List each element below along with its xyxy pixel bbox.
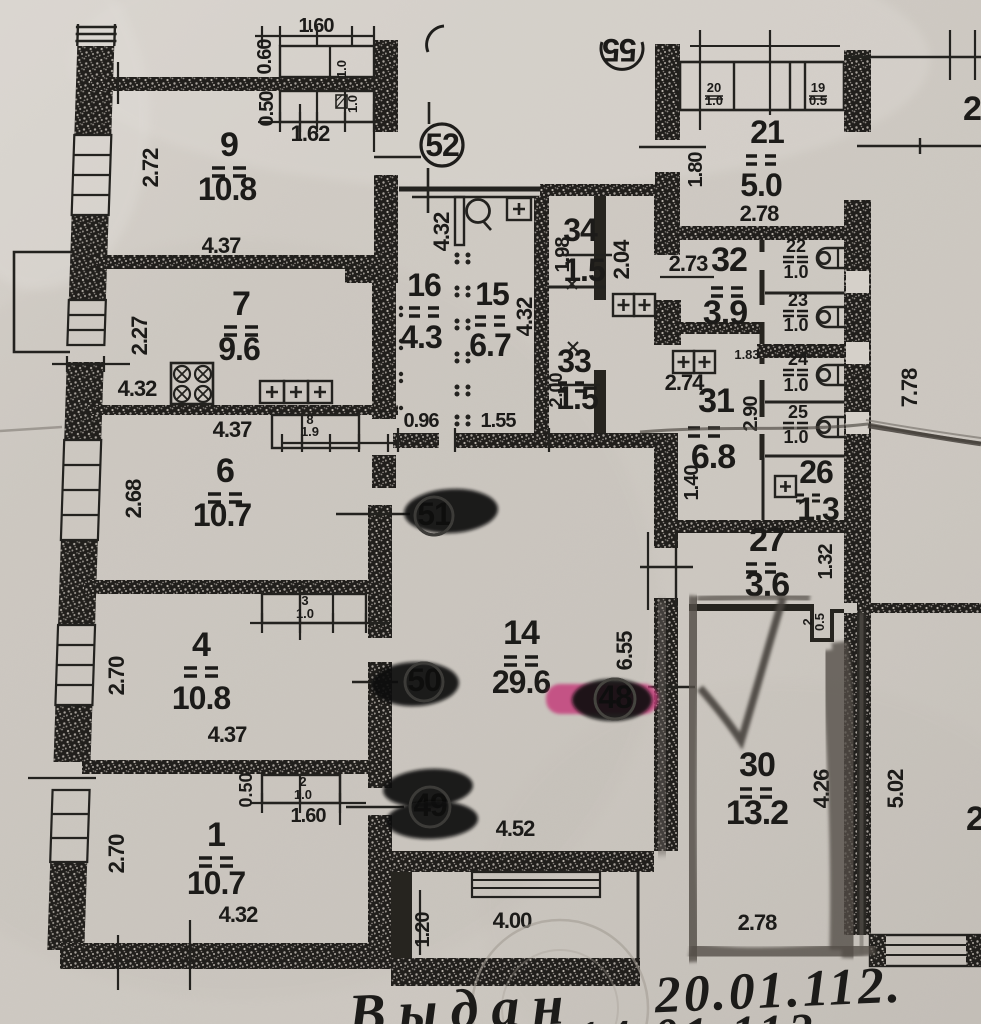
svg-text:2.73: 2.73 — [669, 251, 709, 276]
svg-text:4.32: 4.32 — [219, 902, 259, 927]
svg-text:13.2: 13.2 — [726, 794, 788, 832]
svg-text:4.37: 4.37 — [202, 233, 242, 258]
svg-text:1.0: 1.0 — [783, 375, 808, 395]
svg-text:10.7: 10.7 — [193, 497, 251, 533]
svg-text:1.32: 1.32 — [815, 544, 837, 580]
svg-text:0.96: 0.96 — [404, 410, 440, 432]
svg-text:31: 31 — [698, 382, 734, 420]
svg-text:4.32: 4.32 — [429, 212, 454, 252]
svg-text:30: 30 — [739, 746, 775, 784]
svg-text:6: 6 — [216, 452, 234, 490]
svg-text:1.62: 1.62 — [291, 121, 331, 146]
svg-text:1.60: 1.60 — [291, 805, 327, 827]
svg-text:1.0: 1.0 — [334, 60, 349, 78]
svg-text:23: 23 — [788, 290, 808, 310]
svg-text:1.83: 1.83 — [734, 347, 759, 362]
svg-text:4.00: 4.00 — [493, 908, 533, 933]
svg-text:9.6: 9.6 — [218, 331, 260, 367]
svg-text:2.00: 2.00 — [546, 372, 566, 407]
svg-text:6.7: 6.7 — [469, 327, 511, 363]
svg-text:6.55: 6.55 — [612, 631, 637, 671]
svg-text:10.7: 10.7 — [187, 865, 245, 901]
svg-text:2.68: 2.68 — [121, 479, 146, 519]
svg-text:1.0: 1.0 — [783, 262, 808, 282]
svg-text:2.04: 2.04 — [609, 239, 634, 280]
svg-text:4.37: 4.37 — [208, 722, 248, 747]
svg-text:1.0: 1.0 — [294, 787, 312, 802]
svg-text:0.60: 0.60 — [254, 39, 276, 75]
svg-text:7: 7 — [232, 285, 250, 323]
svg-text:52: 52 — [425, 127, 459, 163]
svg-text:5.0: 5.0 — [740, 167, 782, 203]
svg-text:4.32: 4.32 — [118, 376, 158, 401]
svg-text:10.8: 10.8 — [198, 171, 256, 207]
svg-text:2.70: 2.70 — [104, 656, 129, 696]
svg-text:2.27: 2.27 — [127, 316, 152, 356]
svg-text:1.80: 1.80 — [685, 152, 707, 188]
svg-text:2.90: 2.90 — [740, 396, 762, 432]
svg-text:2: 2 — [966, 800, 981, 838]
svg-text:27: 27 — [749, 521, 785, 559]
svg-text:21: 21 — [750, 114, 784, 150]
svg-text:16: 16 — [407, 267, 441, 303]
svg-text:2.72: 2.72 — [138, 148, 163, 188]
svg-text:1.3: 1.3 — [797, 491, 839, 527]
svg-text:26: 26 — [799, 454, 833, 490]
svg-text:1.5: 1.5 — [563, 252, 605, 288]
svg-text:4.32: 4.32 — [512, 297, 537, 337]
svg-text:4: 4 — [192, 626, 211, 664]
svg-text:1.40: 1.40 — [681, 465, 703, 501]
svg-text:1.20: 1.20 — [412, 912, 434, 948]
svg-text:2: 2 — [963, 90, 981, 128]
svg-text:1.0: 1.0 — [783, 427, 808, 447]
svg-text:0.50: 0.50 — [256, 91, 278, 127]
svg-text:2.78: 2.78 — [740, 201, 780, 226]
svg-text:3.9: 3.9 — [703, 294, 747, 332]
svg-text:24: 24 — [788, 349, 808, 369]
svg-text:14: 14 — [503, 614, 540, 652]
svg-text:1.55: 1.55 — [481, 410, 517, 432]
svg-text:22: 22 — [786, 236, 806, 256]
svg-text:32: 32 — [711, 241, 747, 279]
svg-text:9: 9 — [220, 126, 238, 164]
svg-text:1.0: 1.0 — [345, 95, 360, 113]
svg-text:15: 15 — [475, 276, 509, 312]
svg-text:2: 2 — [800, 618, 815, 625]
svg-text:5.02: 5.02 — [883, 769, 908, 809]
svg-text:29.6: 29.6 — [492, 664, 550, 700]
svg-text:2.78: 2.78 — [738, 910, 778, 935]
svg-text:25: 25 — [788, 402, 808, 422]
svg-text:2.70: 2.70 — [104, 834, 129, 874]
svg-text:1.9: 1.9 — [301, 424, 319, 439]
svg-text:0.50: 0.50 — [236, 772, 256, 807]
svg-text:1.0: 1.0 — [783, 315, 808, 335]
svg-text:1: 1 — [207, 816, 225, 854]
svg-text:4.37: 4.37 — [213, 417, 253, 442]
svg-text:7.78: 7.78 — [897, 368, 922, 408]
svg-text:55: 55 — [603, 32, 637, 68]
svg-text:4.3: 4.3 — [400, 319, 442, 355]
svg-text:4.52: 4.52 — [496, 816, 536, 841]
svg-text:10.8: 10.8 — [172, 680, 230, 716]
svg-text:1.0: 1.0 — [296, 606, 314, 621]
